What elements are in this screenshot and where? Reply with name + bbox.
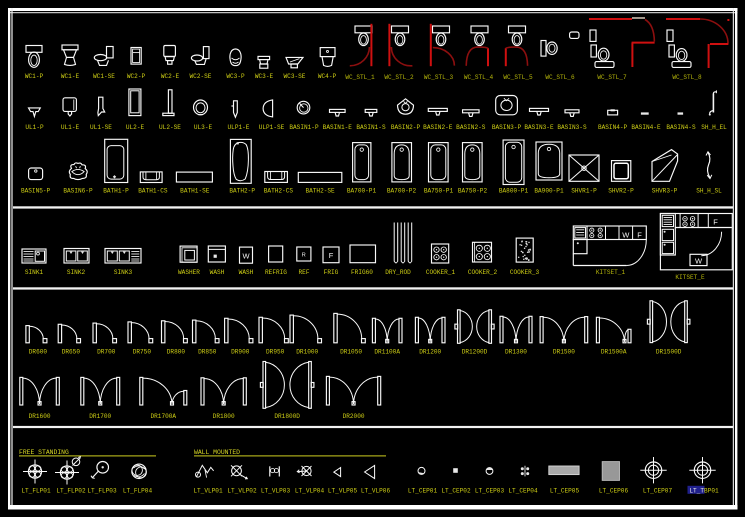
- svg-text:DR1600: DR1600: [29, 413, 51, 420]
- svg-text:BASIN2-P: BASIN2-P: [391, 124, 421, 131]
- svg-text:DR800: DR800: [167, 349, 186, 356]
- svg-text:LT_FLP02: LT_FLP02: [56, 488, 86, 495]
- svg-text:BA700-P2: BA700-P2: [387, 187, 417, 194]
- svg-text:SHVR2-P: SHVR2-P: [608, 187, 634, 194]
- svg-text:WC_STL_2: WC_STL_2: [384, 74, 414, 81]
- svg-text:ULP1-E: ULP1-E: [228, 124, 250, 131]
- svg-text:LT_VLP04: LT_VLP04: [295, 488, 325, 495]
- svg-text:BASIN1-E: BASIN1-E: [323, 124, 353, 131]
- svg-text:BASIN3-E: BASIN3-E: [524, 124, 554, 131]
- svg-text:DR1200D: DR1200D: [462, 349, 488, 356]
- svg-text:BASIN3-P: BASIN3-P: [492, 124, 522, 131]
- svg-text:COOKER_2: COOKER_2: [468, 269, 498, 276]
- svg-text:BATH2-CS: BATH2-CS: [264, 187, 294, 194]
- svg-text:LT_CEP05: LT_CEP05: [550, 488, 580, 495]
- svg-text:LT_CEP01: LT_CEP01: [408, 488, 438, 495]
- svg-text:DR850: DR850: [198, 349, 217, 356]
- svg-text:FREE STANDING: FREE STANDING: [19, 449, 69, 456]
- svg-text:DR1300: DR1300: [505, 349, 527, 356]
- svg-text:UL1-P: UL1-P: [25, 124, 44, 131]
- svg-text:WC_STL_5: WC_STL_5: [503, 74, 533, 81]
- svg-text:WC3-SE: WC3-SE: [284, 73, 306, 80]
- svg-text:UL2-SE: UL2-SE: [159, 124, 181, 131]
- svg-text:WC_STL_3: WC_STL_3: [424, 74, 454, 81]
- svg-text:WC_STL_8: WC_STL_8: [672, 74, 702, 81]
- svg-text:DR1700: DR1700: [89, 413, 111, 420]
- svg-text:WC3-E: WC3-E: [255, 73, 274, 80]
- svg-text:BA700-P1: BA700-P1: [347, 187, 377, 194]
- svg-text:DR650: DR650: [62, 349, 81, 356]
- svg-text:LT_VLP02: LT_VLP02: [227, 488, 257, 495]
- svg-text:SH_H_SL: SH_H_SL: [696, 187, 722, 194]
- svg-text:LT_VLP06: LT_VLP06: [361, 488, 391, 495]
- svg-text:UL1-SE: UL1-SE: [90, 124, 112, 131]
- svg-text:BATH1-SE: BATH1-SE: [180, 187, 210, 194]
- svg-text:COOKER_3: COOKER_3: [510, 269, 540, 276]
- svg-text:DR1800: DR1800: [213, 413, 235, 420]
- svg-text:FRIG60: FRIG60: [351, 269, 373, 276]
- svg-text:SINK3: SINK3: [114, 269, 133, 276]
- svg-text:BA750-P2: BA750-P2: [458, 187, 488, 194]
- svg-text:WC4-P: WC4-P: [318, 73, 337, 80]
- svg-text:UL1-E: UL1-E: [61, 124, 80, 131]
- svg-text:BASIN4-S: BASIN4-S: [666, 124, 696, 131]
- svg-text:LT_VLP05: LT_VLP05: [328, 488, 358, 495]
- svg-text:BASIN1-S: BASIN1-S: [356, 124, 386, 131]
- svg-text:BASIN4-E: BASIN4-E: [631, 124, 661, 131]
- svg-text:LT_FLP03: LT_FLP03: [87, 488, 117, 495]
- svg-text:SHVR1-P: SHVR1-P: [571, 187, 597, 194]
- svg-text:SH_H_EL: SH_H_EL: [701, 124, 727, 131]
- svg-text:BASIN2-E: BASIN2-E: [423, 124, 453, 131]
- svg-text:DR1050: DR1050: [340, 349, 362, 356]
- svg-text:BASIN1-P: BASIN1-P: [289, 124, 319, 131]
- svg-text:R: R: [302, 253, 306, 259]
- svg-text:WC_STL_7: WC_STL_7: [597, 74, 627, 81]
- svg-text:DR1100A: DR1100A: [374, 349, 400, 356]
- svg-text:BASIN5-P: BASIN5-P: [21, 187, 51, 194]
- svg-text:ULP1-SE: ULP1-SE: [259, 124, 285, 131]
- svg-text:W: W: [242, 251, 250, 260]
- svg-text:BA800-P1: BA800-P1: [499, 187, 529, 194]
- svg-text:LT_CEP03: LT_CEP03: [475, 488, 505, 495]
- svg-text:SINK1: SINK1: [25, 269, 44, 276]
- svg-text:DRY_ROD: DRY_ROD: [385, 269, 411, 276]
- svg-text:BATH2-SE: BATH2-SE: [305, 187, 335, 194]
- svg-text:COOKER_1: COOKER_1: [426, 269, 456, 276]
- svg-text:WC2-P: WC2-P: [127, 73, 146, 80]
- svg-text:WC2-E: WC2-E: [161, 73, 180, 80]
- svg-text:DR950: DR950: [266, 349, 285, 356]
- svg-text:LT_FLP04: LT_FLP04: [123, 488, 153, 495]
- svg-text:DR1700A: DR1700A: [150, 413, 176, 420]
- svg-text:FRIG: FRIG: [324, 269, 339, 276]
- svg-text:DR1500A: DR1500A: [601, 349, 627, 356]
- svg-text:BATH1-P: BATH1-P: [103, 187, 129, 194]
- svg-text:UL2-E: UL2-E: [126, 124, 145, 131]
- svg-text:W: W: [695, 256, 703, 265]
- svg-text:BASIN3-S: BASIN3-S: [557, 124, 587, 131]
- svg-text:LT_TBP01: LT_TBP01: [689, 488, 719, 495]
- svg-text:REF: REF: [299, 269, 310, 276]
- svg-text:WASH: WASH: [210, 269, 225, 276]
- svg-text:LT_VLP03: LT_VLP03: [261, 488, 291, 495]
- svg-text:KITSET_E: KITSET_E: [675, 274, 705, 281]
- svg-text:UL3-E: UL3-E: [194, 124, 213, 131]
- svg-text:WC_STL_1: WC_STL_1: [345, 74, 375, 81]
- svg-text:F: F: [637, 230, 642, 239]
- svg-text:F: F: [329, 251, 334, 260]
- svg-text:LT_CEP04: LT_CEP04: [508, 488, 538, 495]
- svg-text:DR1500: DR1500: [553, 349, 575, 356]
- svg-text:DR700: DR700: [97, 349, 116, 356]
- svg-text:DR1200: DR1200: [419, 349, 441, 356]
- svg-text:WC_STL_4: WC_STL_4: [464, 74, 494, 81]
- svg-text:DR2000: DR2000: [343, 413, 365, 420]
- svg-text:LT_CEP06: LT_CEP06: [599, 488, 629, 495]
- svg-text:WC1-SE: WC1-SE: [93, 73, 115, 80]
- svg-text:BASIN4-P: BASIN4-P: [598, 124, 628, 131]
- svg-text:WASHER: WASHER: [178, 269, 200, 276]
- svg-text:BATH2-P: BATH2-P: [229, 187, 255, 194]
- svg-text:BATH1-CS: BATH1-CS: [138, 187, 168, 194]
- svg-text:WC2-SE: WC2-SE: [190, 73, 212, 80]
- svg-text:F: F: [713, 218, 718, 227]
- svg-text:DR1800D: DR1800D: [274, 413, 300, 420]
- svg-text:SINK2: SINK2: [67, 269, 86, 276]
- svg-text:WC_STL_6: WC_STL_6: [545, 74, 575, 81]
- svg-text:LT_VLP01: LT_VLP01: [193, 488, 223, 495]
- svg-text:WC3-P: WC3-P: [226, 73, 245, 80]
- svg-text:WC1-E: WC1-E: [61, 73, 80, 80]
- svg-text:LT_CEP02: LT_CEP02: [441, 488, 471, 495]
- svg-text:BA750-P1: BA750-P1: [424, 187, 454, 194]
- svg-text:LT_CEP07: LT_CEP07: [643, 488, 673, 495]
- svg-text:LT_FLP01: LT_FLP01: [21, 488, 51, 495]
- svg-text:BA900-P1: BA900-P1: [534, 187, 564, 194]
- svg-text:BASIN2-S: BASIN2-S: [456, 124, 486, 131]
- svg-text:WC1-P: WC1-P: [25, 73, 44, 80]
- svg-text:BASIN6-P: BASIN6-P: [63, 187, 93, 194]
- svg-text:REFRIG: REFRIG: [265, 269, 287, 276]
- svg-text:KITSET_1: KITSET_1: [596, 269, 626, 276]
- svg-text:DR750: DR750: [133, 349, 152, 356]
- svg-text:DR1500D: DR1500D: [656, 349, 682, 356]
- svg-text:DR1000: DR1000: [296, 349, 318, 356]
- svg-text:DR600: DR600: [29, 349, 48, 356]
- svg-text:DR900: DR900: [231, 349, 250, 356]
- svg-text:WALL MOUNTED: WALL MOUNTED: [194, 449, 240, 456]
- svg-text:SHVR3-P: SHVR3-P: [652, 187, 678, 194]
- svg-text:W: W: [622, 230, 630, 239]
- svg-text:WASH: WASH: [239, 269, 254, 276]
